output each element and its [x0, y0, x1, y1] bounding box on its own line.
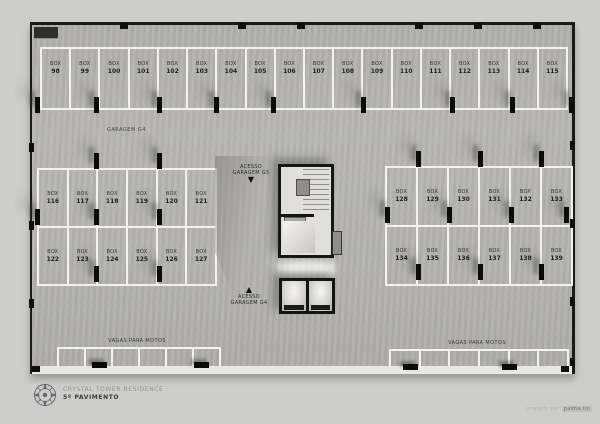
parking-stall-129: BOX129 — [416, 168, 447, 225]
parking-stall-138: BOX138 — [509, 227, 540, 284]
stall-prefix-label: BOX — [342, 62, 353, 67]
moto-stall — [138, 349, 165, 367]
stall-number-label: 117 — [76, 198, 89, 205]
stall-prefix-label: BOX — [47, 192, 58, 197]
wall-tick — [415, 23, 423, 29]
column-marker — [564, 207, 569, 223]
column-marker — [35, 209, 40, 225]
column-marker — [385, 207, 390, 223]
wall-tick — [29, 221, 34, 230]
parking-stall-106: BOX106 — [274, 49, 303, 108]
moto-stall — [165, 349, 192, 367]
wall-tick — [238, 23, 246, 29]
stall-number-label: 104 — [225, 68, 238, 75]
column-marker — [510, 97, 515, 113]
stall-number-label: 133 — [550, 196, 563, 203]
stall-number-label: 111 — [429, 68, 442, 75]
stall-number-label: 116 — [47, 198, 60, 205]
parking-stall-134: BOX134 — [387, 227, 416, 284]
wall-tick — [297, 23, 305, 29]
moto-parking-left-label: VAGAS PARA MOTOS — [57, 338, 217, 344]
stall-number-label: 105 — [254, 68, 267, 75]
stall-number-label: 103 — [195, 68, 208, 75]
stall-prefix-label: BOX — [488, 62, 499, 67]
core-ledge — [332, 231, 342, 255]
column-marker — [157, 209, 162, 225]
stall-number-label: 107 — [312, 68, 325, 75]
stall-prefix-label: BOX — [401, 62, 412, 67]
elevator-shaft-2 — [309, 281, 333, 311]
stall-number-label: 114 — [517, 68, 530, 75]
motorcycle — [92, 362, 107, 368]
floor-name: 5º PAVIMENTO — [63, 394, 163, 401]
stall-prefix-label: BOX — [196, 250, 207, 255]
column-marker — [271, 97, 276, 113]
floor-plan-page: BOX98BOX99BOX100BOX101BOX102BOX103BOX104… — [0, 0, 600, 424]
column-marker — [94, 97, 99, 113]
parking-stall-124: BOX124 — [96, 228, 126, 284]
stall-prefix-label: BOX — [517, 62, 528, 67]
stall-number-label: 139 — [550, 255, 563, 262]
wall-tick — [570, 297, 575, 306]
credit-prefix: imagem por — [526, 406, 559, 412]
parking-stall-108: BOX108 — [332, 49, 361, 108]
stall-number-label: 112 — [458, 68, 471, 75]
stall-prefix-label: BOX — [489, 249, 500, 254]
stall-number-label: 128 — [395, 196, 408, 203]
column-marker — [539, 151, 544, 167]
stall-prefix-label: BOX — [196, 192, 207, 197]
parking-stall-127: BOX127 — [185, 228, 215, 284]
parking-stall-110: BOX110 — [391, 49, 420, 108]
stall-prefix-label: BOX — [547, 62, 558, 67]
stall-prefix-label: BOX — [77, 250, 88, 255]
elevator-bank — [279, 278, 335, 314]
wall-tick — [474, 23, 482, 29]
elevator-shaft-1 — [282, 281, 306, 311]
stall-number-label: 124 — [106, 256, 119, 263]
motorcycle — [194, 362, 209, 368]
access-garage-g4-label: ▲ ACESSO GARAGEM G4 — [218, 286, 280, 306]
wall-tick — [32, 366, 40, 372]
parking-stall-104: BOX104 — [215, 49, 244, 108]
column-marker — [450, 97, 455, 113]
parking-stall-125: BOX125 — [126, 228, 156, 284]
stall-number-label: 119 — [136, 198, 149, 205]
parking-stall-116: BOX116 — [39, 170, 67, 226]
image-credit: imagem porpalma.rio — [526, 406, 592, 412]
parking-stall-119: BOX119 — [126, 170, 156, 226]
stall-prefix-label: BOX — [47, 250, 58, 255]
stall-number-label: 130 — [457, 196, 470, 203]
stall-number-label: 100 — [108, 68, 121, 75]
parking-stall-98: BOX98 — [42, 49, 69, 108]
compass-rose-icon — [33, 383, 57, 407]
access-garage-g5-label: ACESSO GARAGEM G5 ▼ — [220, 164, 282, 184]
parking-stall-128: BOX128 — [387, 168, 416, 225]
stall-prefix-label: BOX — [489, 190, 500, 195]
stall-number-label: 129 — [426, 196, 439, 203]
column-marker — [416, 151, 421, 167]
arrow-down-icon: ▼ — [220, 176, 282, 184]
column-marker — [214, 97, 219, 113]
elevator-lobby-highlight — [276, 256, 336, 278]
stall-prefix-label: BOX — [459, 62, 470, 67]
right-block-row-1: BOX128BOX129BOX130BOX131BOX132BOX133 — [387, 168, 571, 225]
stall-number-label: 99 — [81, 68, 89, 75]
stall-prefix-label: BOX — [196, 62, 207, 67]
stair-core — [278, 164, 334, 258]
stall-number-label: 108 — [342, 68, 355, 75]
stall-number-label: 132 — [519, 196, 532, 203]
stall-number-label: 98 — [51, 68, 59, 75]
stall-number-label: 121 — [195, 198, 208, 205]
column-marker — [478, 264, 483, 280]
left-parking-block: BOX116BOX117BOX118BOX119BOX120BOX121 BOX… — [37, 168, 217, 286]
stall-number-label: 106 — [283, 68, 296, 75]
stall-number-label: 134 — [395, 255, 408, 262]
stall-prefix-label: BOX — [313, 62, 324, 67]
parking-stall-101: BOX101 — [128, 49, 157, 108]
stall-number-label: 126 — [165, 256, 178, 263]
stall-number-label: 113 — [488, 68, 501, 75]
stall-number-label: 115 — [546, 68, 559, 75]
column-marker — [569, 97, 574, 113]
column-marker — [94, 266, 99, 282]
elevator-door-2 — [311, 305, 331, 310]
parking-stall-123: BOX123 — [67, 228, 97, 284]
stall-number-label: 101 — [137, 68, 150, 75]
column-marker — [94, 209, 99, 225]
credit-name: palma.rio — [562, 406, 592, 412]
column-marker — [94, 153, 99, 169]
wall-tick — [570, 141, 575, 150]
parking-stall-115: BOX115 — [537, 49, 566, 108]
column-marker — [157, 266, 162, 282]
motorcycle — [502, 364, 517, 370]
parking-stall-100: BOX100 — [98, 49, 127, 108]
stall-prefix-label: BOX — [396, 190, 407, 195]
parking-stall-139: BOX139 — [540, 227, 571, 284]
parking-stall-131: BOX131 — [478, 168, 509, 225]
access-g4-line2: GARAGEM G4 — [218, 300, 280, 306]
wall-tick — [120, 23, 128, 29]
parking-stall-103: BOX103 — [186, 49, 215, 108]
parking-stall-117: BOX117 — [67, 170, 97, 226]
stall-number-label: 123 — [76, 256, 89, 263]
stair-shaft — [296, 179, 310, 196]
stall-prefix-label: BOX — [167, 62, 178, 67]
garage-level-label: GARAGEM G4 — [107, 127, 146, 133]
column-marker — [157, 153, 162, 169]
column-marker — [157, 97, 162, 113]
stall-number-label: 122 — [47, 256, 60, 263]
stall-prefix-label: BOX — [138, 62, 149, 67]
core-lobby — [283, 221, 315, 253]
parking-stall-113: BOX113 — [478, 49, 507, 108]
column-marker — [539, 264, 544, 280]
stall-number-label: 127 — [195, 256, 208, 263]
stall-prefix-label: BOX — [396, 249, 407, 254]
stall-prefix-label: BOX — [50, 62, 61, 67]
stall-prefix-label: BOX — [166, 250, 177, 255]
column-marker — [416, 264, 421, 280]
stall-number-label: 131 — [488, 196, 501, 203]
wall-tick — [533, 23, 541, 29]
project-name: CRYSTAL TOWER RESIDENCE — [63, 386, 163, 393]
stall-prefix-label: BOX — [458, 190, 469, 195]
column-marker — [447, 207, 452, 223]
stall-prefix-label: BOX — [458, 249, 469, 254]
left-block-row-1: BOX116BOX117BOX118BOX119BOX120BOX121 — [39, 170, 215, 226]
elevator-door-1 — [284, 305, 304, 310]
floor-plan: BOX98BOX99BOX100BOX101BOX102BOX103BOX104… — [30, 22, 575, 374]
column-marker — [361, 97, 366, 113]
moto-stall — [111, 349, 138, 367]
column-marker — [478, 151, 483, 167]
stall-number-label: 110 — [400, 68, 413, 75]
stall-prefix-label: BOX — [79, 62, 90, 67]
stall-prefix-label: BOX — [107, 192, 118, 197]
column-marker — [509, 207, 514, 223]
parking-stall-118: BOX118 — [96, 170, 126, 226]
stall-prefix-label: BOX — [77, 192, 88, 197]
wall-tick — [29, 299, 34, 308]
stall-number-label: 135 — [426, 255, 439, 262]
stall-number-label: 136 — [457, 255, 470, 262]
stall-number-label: 109 — [371, 68, 384, 75]
stall-number-label: 102 — [166, 68, 179, 75]
stall-prefix-label: BOX — [520, 249, 531, 254]
parking-stall-136: BOX136 — [447, 227, 478, 284]
stall-prefix-label: BOX — [430, 62, 441, 67]
stall-prefix-label: BOX — [107, 250, 118, 255]
wall-tick — [29, 143, 34, 152]
parking-stall-121: BOX121 — [185, 170, 215, 226]
stall-prefix-label: BOX — [551, 249, 562, 254]
stall-prefix-label: BOX — [427, 249, 438, 254]
stall-prefix-label: BOX — [136, 192, 147, 197]
stall-prefix-label: BOX — [166, 192, 177, 197]
stall-prefix-label: BOX — [551, 190, 562, 195]
parking-stall-122: BOX122 — [39, 228, 67, 284]
moto-stall — [59, 349, 84, 367]
stall-number-label: 120 — [165, 198, 178, 205]
stall-prefix-label: BOX — [520, 190, 531, 195]
arrow-up-icon: ▲ — [218, 286, 280, 294]
left-block-row-2: BOX122BOX123BOX124BOX125BOX126BOX127 — [39, 226, 215, 284]
top-parking-row: BOX98BOX99BOX100BOX101BOX102BOX103BOX104… — [40, 47, 568, 110]
moto-parking-right-label: VAGAS PARA MOTOS — [389, 340, 565, 346]
parking-stall-107: BOX107 — [303, 49, 332, 108]
stall-prefix-label: BOX — [108, 62, 119, 67]
stall-number-label: 137 — [488, 255, 501, 262]
wall-tick — [570, 219, 575, 228]
wall-tick — [561, 366, 569, 372]
stall-prefix-label: BOX — [284, 62, 295, 67]
footer-title-block: CRYSTAL TOWER RESIDENCE 5º PAVIMENTO — [63, 386, 163, 401]
bottom-wall-band — [32, 366, 572, 374]
corner-structure — [34, 27, 58, 39]
stall-number-label: 125 — [136, 256, 149, 263]
stall-prefix-label: BOX — [427, 190, 438, 195]
column-marker — [35, 97, 40, 113]
parking-stall-111: BOX111 — [420, 49, 449, 108]
motorcycle — [403, 364, 418, 370]
stall-prefix-label: BOX — [136, 250, 147, 255]
stall-number-label: 118 — [106, 198, 119, 205]
stall-prefix-label: BOX — [254, 62, 265, 67]
parking-stall-105: BOX105 — [245, 49, 274, 108]
stall-prefix-label: BOX — [371, 62, 382, 67]
stall-prefix-label: BOX — [225, 62, 236, 67]
stall-number-label: 138 — [519, 255, 532, 262]
